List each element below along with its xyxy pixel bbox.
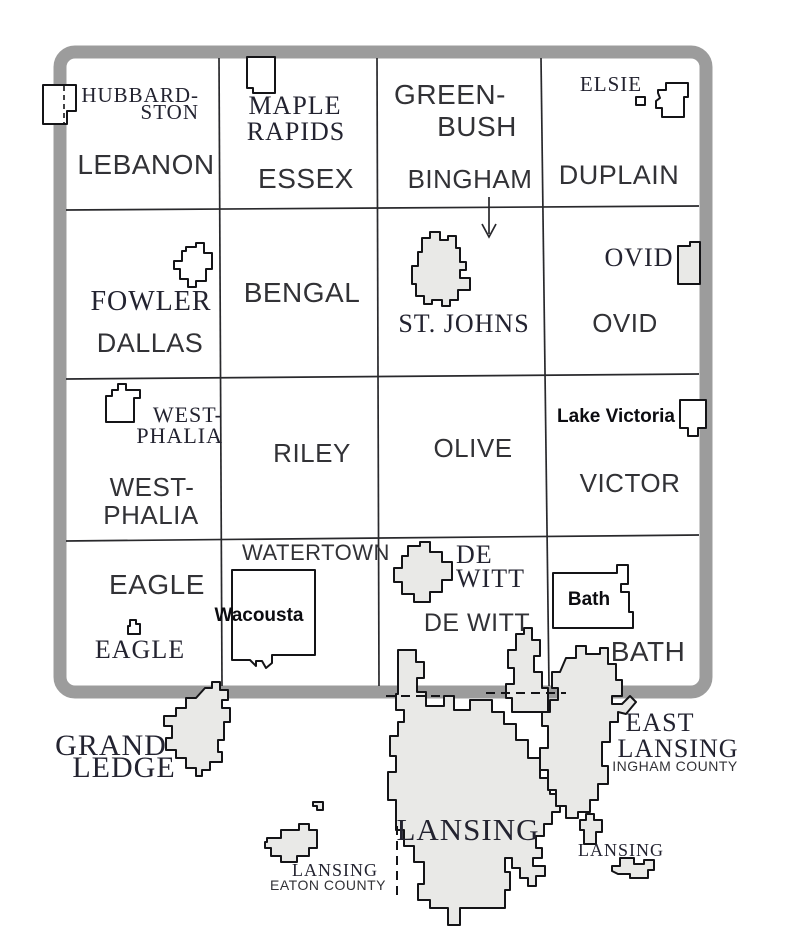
label-essex-township: ESSEX — [258, 163, 354, 194]
label-hubbardston-line2: STON — [141, 100, 199, 124]
label-st-johns-city: ST. JOHNS — [398, 309, 529, 338]
county-municipalities-map: LEBANON ESSEX GREEN- BUSH BINGHAM DUPLAI… — [0, 0, 800, 950]
lansing-west-island-shape — [265, 824, 317, 862]
ovid-village-shape — [678, 242, 700, 284]
elsie-village-fragment — [636, 97, 645, 105]
label-victor-township: VICTOR — [580, 468, 681, 498]
label-fowler-village: FOWLER — [90, 286, 211, 317]
label-riley-township: RILEY — [273, 438, 351, 468]
label-ingham-county-note: INGHAM COUNTY — [612, 758, 738, 774]
label-greenbush-township-line2: BUSH — [437, 111, 517, 142]
label-maple-rapids-line1: MAPLE — [248, 91, 341, 120]
label-eaton-county-note: EATON COUNTY — [270, 877, 386, 893]
label-bath-cdp: Bath — [568, 589, 610, 610]
label-east-lansing-line1: EAST — [626, 708, 695, 737]
label-lansing-city: LANSING — [396, 812, 539, 847]
label-elsie-village: ELSIE — [580, 72, 642, 96]
label-bath-township: BATH — [611, 636, 686, 667]
label-eagle-township: EAGLE — [109, 569, 205, 600]
label-olive-township: OLIVE — [433, 433, 512, 463]
label-dallas-township: DALLAS — [97, 328, 204, 358]
label-lebanon-township: LEBANON — [77, 149, 214, 180]
label-westphalia-township-line2: PHALIA — [103, 500, 199, 530]
label-ovid-village: OVID — [605, 243, 674, 272]
label-westphalia-village-line2: PHALIA — [136, 423, 223, 448]
label-dewitt-city-line2: WITT — [456, 564, 525, 593]
label-westphalia-township-line1: WEST- — [110, 472, 195, 502]
label-bingham-township: BINGHAM — [408, 164, 533, 194]
label-bengal-township: BENGAL — [244, 277, 361, 308]
lansing-southeast-island-shape — [612, 858, 654, 878]
label-maple-rapids-line2: RAPIDS — [247, 117, 345, 146]
label-dewitt-township: DE WITT — [424, 609, 530, 637]
westphalia-village-shape — [106, 384, 140, 422]
label-duplain-township: DUPLAIN — [559, 160, 680, 190]
label-eagle-village: EAGLE — [95, 635, 185, 664]
label-lansing-east-exclave: LANSING — [578, 840, 664, 860]
label-ovid-township: OVID — [592, 308, 658, 338]
label-greenbush-township-line1: GREEN- — [394, 79, 506, 110]
label-wacousta-cdp: Wacousta — [214, 605, 303, 626]
lansing-west-island-fragment — [313, 802, 323, 810]
label-watertown-township: WATERTOWN — [242, 540, 390, 565]
label-lake-victoria-cdp: Lake Victoria — [557, 406, 675, 427]
label-grand-ledge-line2: LEDGE — [72, 751, 175, 784]
maple-rapids-village-shape — [247, 57, 275, 93]
